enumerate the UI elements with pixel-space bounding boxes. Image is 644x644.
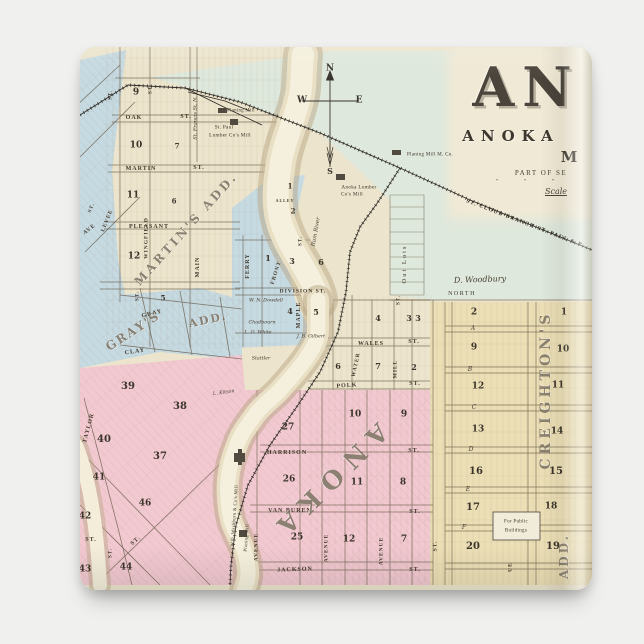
street-label: FRONT xyxy=(271,261,284,286)
block-number: 19 xyxy=(546,542,560,552)
block-number: 18 xyxy=(545,503,558,512)
street-label: ST. xyxy=(149,84,154,94)
block-number: 11 xyxy=(127,192,140,201)
compass-n: N xyxy=(326,65,334,74)
street-label: ST. xyxy=(109,548,114,558)
street-label: D xyxy=(469,447,474,453)
public-buildings-label: Buildings xyxy=(505,529,527,534)
street-label: JACKSON xyxy=(277,566,313,573)
area-label: NORTH xyxy=(448,291,476,297)
street-label: C xyxy=(472,405,477,411)
mill-label: St. Paul xyxy=(215,125,234,130)
block-number: 2 xyxy=(291,208,296,215)
street-label: AVENUE xyxy=(379,537,385,566)
street-label: WATER xyxy=(352,352,363,377)
owner-label: D. Woodbury xyxy=(454,275,507,285)
block-number: 11 xyxy=(552,382,565,391)
block-number: 25 xyxy=(291,534,304,543)
street-label: FERRY xyxy=(245,253,251,278)
street-label: ST. xyxy=(130,535,142,547)
owner-label: W. N. Dowdell xyxy=(249,300,283,305)
street-label: LEVEE xyxy=(101,209,115,233)
block-number: 6 xyxy=(335,362,341,370)
mill-label: Co's Mill xyxy=(341,192,363,197)
mill-label: Planing Mill xyxy=(227,110,255,115)
block-number: 3 xyxy=(289,257,295,265)
street-label: ST. xyxy=(88,202,96,213)
block-number: 12 xyxy=(343,536,356,545)
block-number: 10 xyxy=(130,142,143,151)
owner-label: J. B. Gilbert xyxy=(297,336,325,341)
map-title-block: AN ANOKA M PART OF SE ″ ″ ″ Scale xyxy=(416,55,592,196)
block-number: 9 xyxy=(133,89,139,98)
map-title-section: PART OF SE xyxy=(476,169,592,177)
block-number: 3 xyxy=(415,314,421,322)
block-number: 6 xyxy=(318,258,324,266)
block-number: 20 xyxy=(466,542,480,552)
street-label: POLK xyxy=(336,382,357,389)
mill-label: W.D. Washburn & Co's Mill xyxy=(231,485,240,547)
block-number: 40 xyxy=(97,435,111,445)
block-number: 8 xyxy=(400,479,406,488)
block-number: 5 xyxy=(313,308,319,316)
block-number: 37 xyxy=(153,452,167,462)
street-label: ST. xyxy=(85,537,96,543)
street-label: ALLEY xyxy=(276,199,295,203)
block-number: 41 xyxy=(93,474,106,483)
addition-label: ADD. xyxy=(558,533,570,579)
block-number: 15 xyxy=(549,467,563,477)
block-number: 5 xyxy=(161,295,166,302)
block-number: 42 xyxy=(80,513,91,522)
block-number: 10 xyxy=(349,411,362,420)
street-label: MAPLE xyxy=(296,302,302,329)
block-number: 38 xyxy=(173,402,187,412)
block-number: 7 xyxy=(375,362,381,370)
block-number: 2 xyxy=(471,309,477,318)
addition-label: ADD. xyxy=(188,311,228,330)
street-label: ST. xyxy=(409,381,420,387)
street-label: ST. xyxy=(109,90,114,100)
street-label: OAK xyxy=(126,115,143,121)
street-label: F xyxy=(462,525,466,531)
owner-label: Chadbourn xyxy=(248,322,275,327)
street-label: ST. xyxy=(408,339,419,345)
block-number: 46 xyxy=(139,500,152,509)
block-number: 44 xyxy=(120,564,133,573)
compass-s: S xyxy=(327,167,333,175)
street-label: St. Francis St. N. xyxy=(194,96,199,140)
street-label: A xyxy=(471,326,475,332)
block-number: 1 xyxy=(288,183,293,190)
street-label: CLAY xyxy=(124,348,145,357)
map-title-county: ANOKA xyxy=(416,127,592,145)
street-label: TAYLOR xyxy=(82,412,96,443)
block-number: 7 xyxy=(401,536,407,545)
street-label: ST. xyxy=(408,448,419,454)
river-label: Rum River xyxy=(312,217,323,247)
street-label: AVENUE xyxy=(254,533,260,562)
block-number: 1 xyxy=(265,254,271,262)
block-number: 7 xyxy=(175,143,180,150)
block-number: 12 xyxy=(472,383,485,392)
public-buildings-label: For Public xyxy=(504,520,528,525)
street-label: DIVISION ST. xyxy=(280,289,327,295)
block-number: 6 xyxy=(172,198,177,205)
map-title-scale: Scale xyxy=(506,187,592,196)
area-label: Out Lots xyxy=(402,245,409,284)
block-number: 39 xyxy=(121,382,135,392)
block-number: 16 xyxy=(469,467,483,477)
block-number: 1 xyxy=(561,309,567,318)
street-label: B xyxy=(468,367,472,373)
street-label: E xyxy=(466,487,470,493)
map-magnet: NWESOAKST.MARTINST.PLEASANTWINGFIELDMAIN… xyxy=(80,47,592,590)
block-number: 2 xyxy=(411,363,417,371)
street-label: ST. xyxy=(299,236,304,246)
mill-label: Lumber Co's Mill xyxy=(209,133,251,138)
block-number: 13 xyxy=(472,426,485,435)
street-label: ST. xyxy=(409,509,420,515)
block-number: 17 xyxy=(466,503,480,513)
map-title-big-word: AN xyxy=(446,55,592,119)
block-number: 9 xyxy=(471,344,477,353)
block-number: 43 xyxy=(80,566,91,575)
addition-label: GRAY'S xyxy=(104,309,162,353)
map-title-ditto: ″ ″ ″ xyxy=(456,179,592,185)
street-label: ST. xyxy=(193,165,204,171)
railroad-label: ST. CLOUD BRANCH ST. PAUL & P xyxy=(465,199,583,249)
mill-label: Planing Mill xyxy=(245,524,252,552)
street-label: MARTIN xyxy=(126,166,157,172)
street-label: UE xyxy=(508,562,514,572)
street-label: WINGFIELD xyxy=(144,217,150,259)
street-label: ST. xyxy=(136,291,141,301)
street-label: HARRISON xyxy=(267,450,307,456)
owner-label: Stattler xyxy=(252,358,271,363)
block-number: 11 xyxy=(351,479,364,488)
block-number: 4 xyxy=(375,314,381,322)
owner-label: L. Kitson xyxy=(213,390,235,398)
compass-w: W xyxy=(297,97,307,106)
street-label: ST. xyxy=(433,541,439,552)
product-photo-page: { "product": { "type": "square magnet pr… xyxy=(0,0,644,644)
block-number: 27 xyxy=(282,424,295,433)
map-title-state: M xyxy=(536,148,592,166)
street-label: MAIN xyxy=(195,257,201,278)
street-label: WALES xyxy=(358,341,384,347)
block-number: 14 xyxy=(551,428,564,437)
block-number: 3 xyxy=(406,314,412,322)
block-number: 12 xyxy=(128,253,141,262)
block-number: 9 xyxy=(401,411,407,420)
street-label: ST. xyxy=(397,295,402,305)
block-number: 26 xyxy=(283,476,296,485)
street-label: ST. xyxy=(180,114,191,120)
street-label: ST. xyxy=(409,567,420,573)
street-label: MILL xyxy=(393,360,399,379)
compass-e: E xyxy=(356,97,363,106)
mill-label: Anoka Lumber xyxy=(341,185,376,190)
street-label: AVENUE xyxy=(324,534,330,563)
owner-label: L. O. White xyxy=(244,332,271,337)
block-number: 10 xyxy=(557,346,570,355)
block-number: 4 xyxy=(287,307,293,315)
street-label: AVE xyxy=(83,224,97,237)
